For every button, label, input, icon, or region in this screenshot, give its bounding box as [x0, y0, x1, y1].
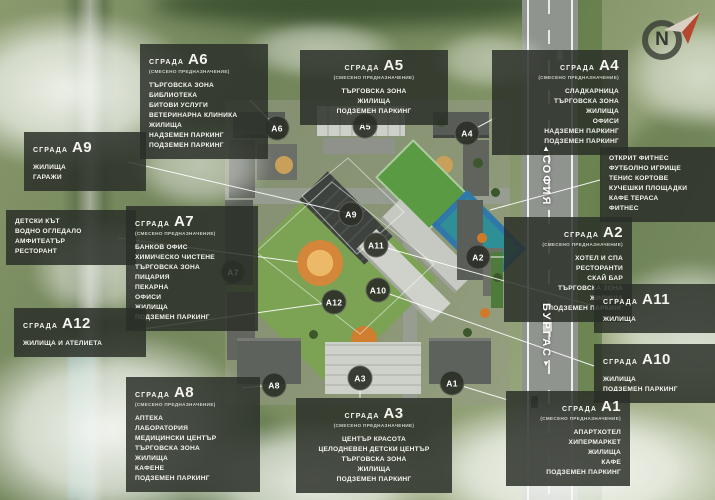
- callout-item: БИБЛИОТЕКА: [149, 91, 259, 101]
- callout-item: ТЪРГОВСКА ЗОНА: [135, 444, 251, 454]
- callout-amenities-right[interactable]: ОТКРИТ ФИТНЕСФУТБОЛНО ИГРИЩЕТЕНИС КОРТОВ…: [600, 147, 715, 222]
- compass: N: [638, 12, 698, 72]
- callout-item: ОТКРИТ ФИТНЕС: [609, 154, 715, 164]
- callout-title: СГРАДА A9: [33, 139, 137, 156]
- building-prefix: СГРАДА: [564, 232, 599, 239]
- callout-item: ПОДЗЕМЕН ПАРКИНГ: [135, 474, 251, 484]
- building-code: A7: [174, 213, 194, 230]
- callout-item: ЖИЛИЩА: [305, 465, 443, 475]
- callout-item: ЦЕЛОДНЕВЕН ДЕТСКИ ЦЕНТЪР: [305, 445, 443, 455]
- map-marker-a4[interactable]: A4: [455, 121, 480, 146]
- callout-title: СГРАДА A3: [305, 405, 443, 422]
- callout-item: ЖИЛИЩА: [149, 121, 259, 131]
- callout-building-a8[interactable]: СГРАДА A8 (СМЕСЕНО ПРЕДНАЗНАЧЕНИЕ) АПТЕК…: [126, 377, 260, 492]
- callout-item: ОФИСИ: [501, 117, 619, 127]
- building-prefix: СГРАДА: [135, 392, 170, 399]
- map-marker-a1[interactable]: A1: [440, 371, 465, 396]
- building-prefix: СГРАДА: [603, 359, 638, 366]
- building-block: [323, 138, 395, 154]
- callout-item: АПАРТХОТЕЛ: [515, 428, 621, 438]
- callout-item: АМФИТЕАТЪР: [15, 237, 127, 247]
- callout-item: ПОДЗЕМЕН ПАРКИНГ: [515, 468, 621, 478]
- tree: [309, 330, 318, 339]
- building-code: A1: [601, 398, 621, 415]
- callout-item: КУЧЕШКИ ПЛОЩАДКИ: [609, 184, 715, 194]
- callout-item: ХИМИЧЕСКО ЧИСТЕНЕ: [135, 253, 249, 263]
- callout-item: ЖИЛИЩА И АТЕЛИЕТА: [23, 339, 137, 349]
- direction-sofia: ▲ СОФИЯ: [540, 143, 552, 206]
- callout-title: СГРАДА A7: [135, 213, 249, 230]
- tree: [491, 188, 500, 197]
- building-uses: ЖИЛИЩАГАРАЖИ: [33, 163, 137, 183]
- building-prefix: СГРАДА: [344, 65, 379, 72]
- callout-title: СГРАДА A6: [149, 51, 259, 68]
- callout-item: ЖИЛИЩА: [33, 163, 137, 173]
- callout-title: СГРАДА A12: [23, 315, 137, 332]
- building-prefix: СГРАДА: [23, 323, 58, 330]
- map-marker-a8[interactable]: A8: [262, 373, 287, 398]
- building-subtitle: (СМЕСЕНО ПРЕДНАЗНАЧЕНИЕ): [149, 69, 259, 74]
- water-strip: [68, 340, 94, 500]
- callout-item: ПОДЗЕМЕН ПАРКИНГ: [149, 141, 259, 151]
- map-marker-a10[interactable]: A10: [366, 278, 391, 303]
- map-marker-a11[interactable]: A11: [364, 233, 389, 258]
- callout-item: ПИЦАРИЯ: [135, 273, 249, 283]
- tree: [463, 328, 472, 337]
- callout-item: КАФЕ ТЕРАСА: [609, 194, 715, 204]
- callout-item: ДЕТСКИ КЪТ: [15, 217, 127, 227]
- arrow-down-icon: ▼: [542, 360, 550, 368]
- masterplan-infographic: A6A5A4A9A11A2A7A10A12A3A8A1 СГРАДА A6 (С…: [0, 0, 715, 500]
- building-uses: ЖИЛИЩА: [603, 315, 715, 325]
- amenity-list: ОТКРИТ ФИТНЕСФУТБОЛНО ИГРИЩЕТЕНИС КОРТОВ…: [609, 154, 715, 214]
- building-uses: СЛАДКАРНИЦАТЪРГОВСКА ЗОНАЖИЛИЩАОФИСИНАДЗ…: [501, 87, 619, 147]
- callout-item: КАФЕ: [515, 458, 621, 468]
- building-code: A12: [62, 315, 91, 332]
- callout-title: СГРАДА A8: [135, 384, 251, 401]
- tree: [477, 233, 487, 243]
- callout-item: ФУТБОЛНО ИГРИЩЕ: [609, 164, 715, 174]
- callout-building-a3[interactable]: СГРАДА A3 (СМЕСЕНО ПРЕДНАЗНАЧЕНИЕ) ЦЕНТЪ…: [296, 398, 452, 493]
- compass-arrow-icon: [662, 10, 702, 46]
- map-marker-a2[interactable]: A2: [466, 245, 491, 270]
- callout-item: ЖИЛИЩА: [603, 315, 715, 325]
- callout-item: ТЪРГОВСКА ЗОНА: [309, 87, 439, 97]
- building-code: A4: [599, 57, 619, 74]
- callout-item: ТЪРГОВСКА ЗОНА: [149, 81, 259, 91]
- callout-item: ПОДЗЕМЕН ПАРКИНГ: [135, 313, 249, 323]
- building-uses: ЖИЛИЩА И АТЕЛИЕТА: [23, 339, 137, 349]
- callout-item: ПОДЗЕМЕН ПАРКИНГ: [305, 475, 443, 485]
- building-uses: ТЪРГОВСКА ЗОНАБИБЛИОТЕКАБИТОВИ УСЛУГИВЕТ…: [149, 81, 259, 151]
- building-uses: ТЪРГОВСКА ЗОНАЖИЛИЩАПОДЗЕМЕН ПАРКИНГ: [309, 87, 439, 117]
- building-subtitle: (СМЕСЕНО ПРЕДНАЗНАЧЕНИЕ): [309, 75, 439, 80]
- callout-building-a9[interactable]: СГРАДА A9 ЖИЛИЩАГАРАЖИ: [24, 132, 146, 191]
- callout-item: ЖИЛИЩА: [309, 97, 439, 107]
- building-code: A11: [642, 291, 670, 308]
- callout-item: ЖИЛИЩА: [135, 303, 249, 313]
- callout-title: СГРАДА A5: [309, 57, 439, 74]
- building-uses: БАНКОВ ОФИСХИМИЧЕСКО ЧИСТЕНЕТЪРГОВСКА ЗО…: [135, 243, 249, 323]
- callout-item: ОФИСИ: [135, 293, 249, 303]
- callout-item: НАДЗЕМЕН ПАРКИНГ: [501, 127, 619, 137]
- callout-item: БИТОВИ УСЛУГИ: [149, 101, 259, 111]
- callout-item: ТЪРГОВСКА ЗОНА: [501, 97, 619, 107]
- callout-item: РЕСТОРАНТИ: [513, 264, 623, 274]
- callout-title: СГРАДА A11: [603, 291, 715, 308]
- callout-item: ПЕКАРНА: [135, 283, 249, 293]
- callout-item: МЕДИЦИНСКИ ЦЕНТЪР: [135, 434, 251, 444]
- building-block: [325, 342, 421, 394]
- callout-building-a12[interactable]: СГРАДА A12 ЖИЛИЩА И АТЕЛИЕТА: [14, 308, 146, 357]
- building-prefix: СГРАДА: [560, 65, 595, 72]
- map-marker-a6[interactable]: A6: [265, 116, 290, 141]
- building-subtitle: (СМЕСЕНО ПРЕДНАЗНАЧЕНИЕ): [501, 75, 619, 80]
- building-code: A5: [384, 57, 404, 74]
- building-code: A6: [188, 51, 208, 68]
- building-prefix: СГРАДА: [603, 299, 638, 306]
- callout-item: СКАЙ БАР: [513, 274, 623, 284]
- callout-item: ХИПЕРМАРКЕТ: [515, 438, 621, 448]
- callout-amenities-left[interactable]: ДЕТСКИ КЪТВОДНО ОГЛЕДАЛОАМФИТЕАТЪРРЕСТОР…: [6, 210, 136, 265]
- callout-item: ХОТЕЛ И СПА: [513, 254, 623, 264]
- building-prefix: СГРАДА: [344, 413, 379, 420]
- callout-item: ТЪРГОВСКА ЗОНА: [135, 263, 249, 273]
- building-code: A8: [174, 384, 194, 401]
- callout-item: ТЕНИС КОРТОВЕ: [609, 174, 715, 184]
- callout-item: АПТЕКА: [135, 414, 251, 424]
- building-block: [463, 140, 489, 196]
- callout-item: ТЪРГОВСКА ЗОНА: [305, 455, 443, 465]
- callout-item: ГАРАЖИ: [33, 173, 137, 183]
- map-marker-a12[interactable]: A12: [322, 290, 347, 315]
- building-uses: АПТЕКАЛАБОРАТОРИЯМЕДИЦИНСКИ ЦЕНТЪРТЪРГОВ…: [135, 414, 251, 484]
- callout-item: ПОДЗЕМЕН ПАРКИНГ: [309, 107, 439, 117]
- callout-item: ЖИЛИЩА: [515, 448, 621, 458]
- building-subtitle: (СМЕСЕНО ПРЕДНАЗНАЧЕНИЕ): [135, 231, 249, 236]
- callout-item: РЕСТОРАНТ: [15, 247, 127, 257]
- map-marker-a3[interactable]: A3: [348, 366, 373, 391]
- map-marker-a9[interactable]: A9: [339, 202, 364, 227]
- building-subtitle: (СМЕСЕНО ПРЕДНАЗНАЧЕНИЕ): [515, 416, 621, 421]
- tree: [473, 158, 483, 168]
- callout-item: БАНКОВ ОФИС: [135, 243, 249, 253]
- callout-title: СГРАДА A10: [603, 351, 715, 368]
- building-uses: АПАРТХОТЕЛХИПЕРМАРКЕТЖИЛИЩАКАФЕПОДЗЕМЕН …: [515, 428, 621, 478]
- building-code: A10: [642, 351, 671, 368]
- callout-building-a5[interactable]: СГРАДА A5 (СМЕСЕНО ПРЕДНАЗНАЧЕНИЕ) ТЪРГО…: [300, 50, 448, 125]
- callout-building-a4[interactable]: СГРАДА A4 (СМЕСЕНО ПРЕДНАЗНАЧЕНИЕ) СЛАДК…: [492, 50, 628, 155]
- building-code: A2: [603, 224, 623, 241]
- callout-item: ФИТНЕС: [609, 204, 715, 214]
- callout-item: ПОДЗЕМЕН ПАРКИНГ: [501, 137, 619, 147]
- building-prefix: СГРАДА: [562, 406, 597, 413]
- callout-building-a6[interactable]: СГРАДА A6 (СМЕСЕНО ПРЕДНАЗНАЧЕНИЕ) ТЪРГО…: [140, 44, 268, 159]
- callout-building-a11[interactable]: СГРАДА A11 ЖИЛИЩА: [594, 284, 715, 333]
- callout-title: СГРАДА A1: [515, 398, 621, 415]
- callout-item: НАДЗЕМЕН ПАРКИНГ: [149, 131, 259, 141]
- direction-burgas: БУРГАС ▼: [540, 303, 552, 370]
- playground-circle: [297, 240, 343, 286]
- building-subtitle: (СМЕСЕНО ПРЕДНАЗНАЧЕНИЕ): [135, 402, 251, 407]
- callout-item: КАФЕНЕ: [135, 464, 251, 474]
- callout-item: ЖИЛИЩА: [135, 454, 251, 464]
- tree: [493, 273, 502, 282]
- treeline-top: [150, 0, 570, 26]
- callout-item: ЦЕНТЪР КРАСОТА: [305, 435, 443, 445]
- building-subtitle: (СМЕСЕНО ПРЕДНАЗНАЧЕНИЕ): [513, 242, 623, 247]
- callout-item: ЖИЛИЩА: [501, 107, 619, 117]
- callout-item: ВЕТЕРИНАРНА КЛИНИКА: [149, 111, 259, 121]
- callout-title: СГРАДА A4: [501, 57, 619, 74]
- building-subtitle: (СМЕСЕНО ПРЕДНАЗНАЧЕНИЕ): [305, 423, 443, 428]
- building-uses: ЦЕНТЪР КРАСОТАЦЕЛОДНЕВЕН ДЕТСКИ ЦЕНТЪРТЪ…: [305, 435, 443, 485]
- building-prefix: СГРАДА: [149, 59, 184, 66]
- arrow-up-icon: ▲: [542, 145, 550, 153]
- callout-item: ЛАБОРАТОРИЯ: [135, 424, 251, 434]
- building-code: A3: [384, 405, 404, 422]
- building-code: A9: [72, 139, 92, 156]
- building-prefix: СГРАДА: [33, 147, 68, 154]
- callout-item: ВОДНО ОГЛЕДАЛО: [15, 227, 127, 237]
- fountain-roof: [275, 156, 293, 174]
- building-prefix: СГРАДА: [135, 221, 170, 228]
- callout-item: ЖИЛИЩА: [603, 375, 715, 385]
- tree: [480, 308, 490, 318]
- amenity-list: ДЕТСКИ КЪТВОДНО ОГЛЕДАЛОАМФИТЕАТЪРРЕСТОР…: [15, 217, 127, 257]
- callout-building-a1[interactable]: СГРАДА A1 (СМЕСЕНО ПРЕДНАЗНАЧЕНИЕ) АПАРТ…: [506, 391, 630, 486]
- callout-item: СЛАДКАРНИЦА: [501, 87, 619, 97]
- callout-title: СГРАДА A2: [513, 224, 623, 241]
